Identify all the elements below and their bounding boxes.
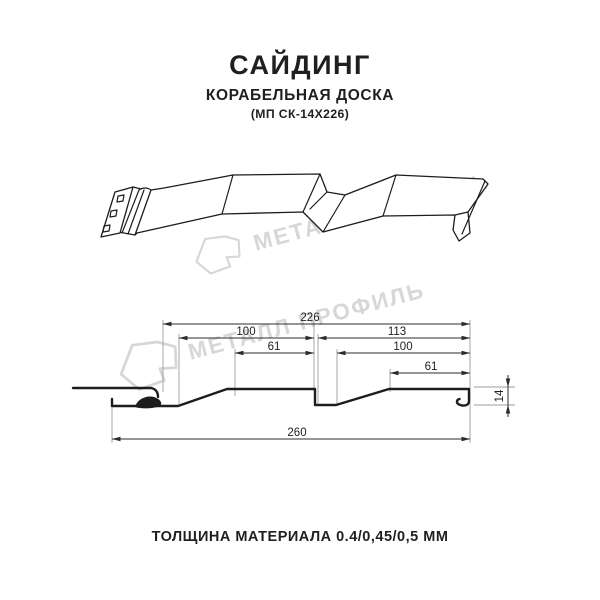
dim-label-100-right: 100 [393, 341, 412, 353]
cross-section-drawing [73, 320, 515, 443]
dim-label-61-right: 61 [425, 361, 438, 373]
page: САЙДИНГ КОРАБЕЛЬНАЯ ДОСКА (МП СК-14Х226)… [0, 0, 600, 600]
profile-3d-view [101, 174, 488, 241]
dim-label-113: 113 [388, 326, 406, 338]
material-thickness-note: ТОЛЩИНА МАТЕРИАЛА 0.4/0,45/0,5 ММ [0, 529, 600, 545]
dim-label-226: 226 [300, 312, 319, 324]
profile-drawing-svg [0, 0, 600, 600]
cross-section-profile [112, 389, 469, 406]
dim-label-260: 260 [287, 427, 306, 439]
dim-label-100-left: 100 [236, 326, 255, 338]
dim-label-61-left: 61 [268, 341, 281, 353]
adjacent-panel-edge [73, 388, 158, 397]
dim-label-14: 14 [494, 390, 506, 403]
dimension-lines [112, 324, 508, 439]
